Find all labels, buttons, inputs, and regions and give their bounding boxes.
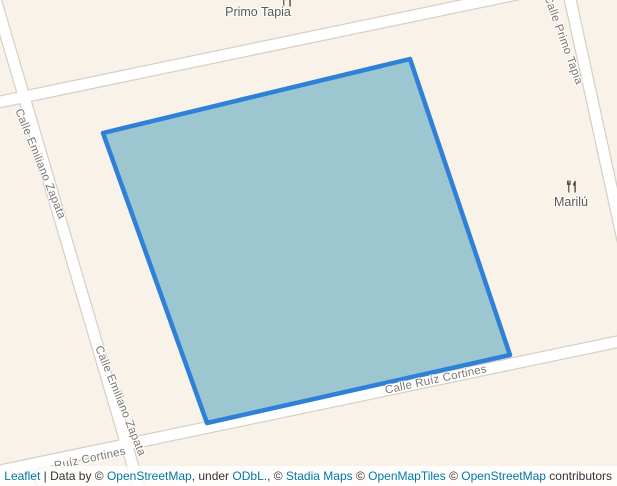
attribution-text: © [353,469,369,483]
attribution-text: | Data by © [40,469,107,483]
restaurant-icon [566,180,577,193]
attribution-link-openstreetmap-2[interactable]: OpenStreetMap [461,469,546,483]
poi-label-primo-tapia: Primo Tapia [225,5,291,19]
attribution-text: © [446,469,462,483]
attribution-link-stadia-maps[interactable]: Stadia Maps [286,469,353,483]
poi-label-marilu: Marilú [554,195,588,209]
attribution-link-leaflet[interactable]: Leaflet [4,469,40,483]
attribution-link-openstreetmap[interactable]: OpenStreetMap [107,469,192,483]
map-canvas [0,0,617,486]
attribution-bar: Leaflet | Data by © OpenStreetMap , unde… [0,466,617,486]
map-viewport[interactable]: Primo Tapia Marilú Calle Emiliano Zapata… [0,0,617,486]
attribution-text: contributors [546,469,612,483]
selection-polygon[interactable] [103,59,510,423]
attribution-text: , under [192,469,233,483]
attribution-link-openmaptiles[interactable]: OpenMapTiles [368,469,446,483]
attribution-link-odbl[interactable]: ODbL. [232,469,267,483]
attribution-text: , © [267,469,286,483]
